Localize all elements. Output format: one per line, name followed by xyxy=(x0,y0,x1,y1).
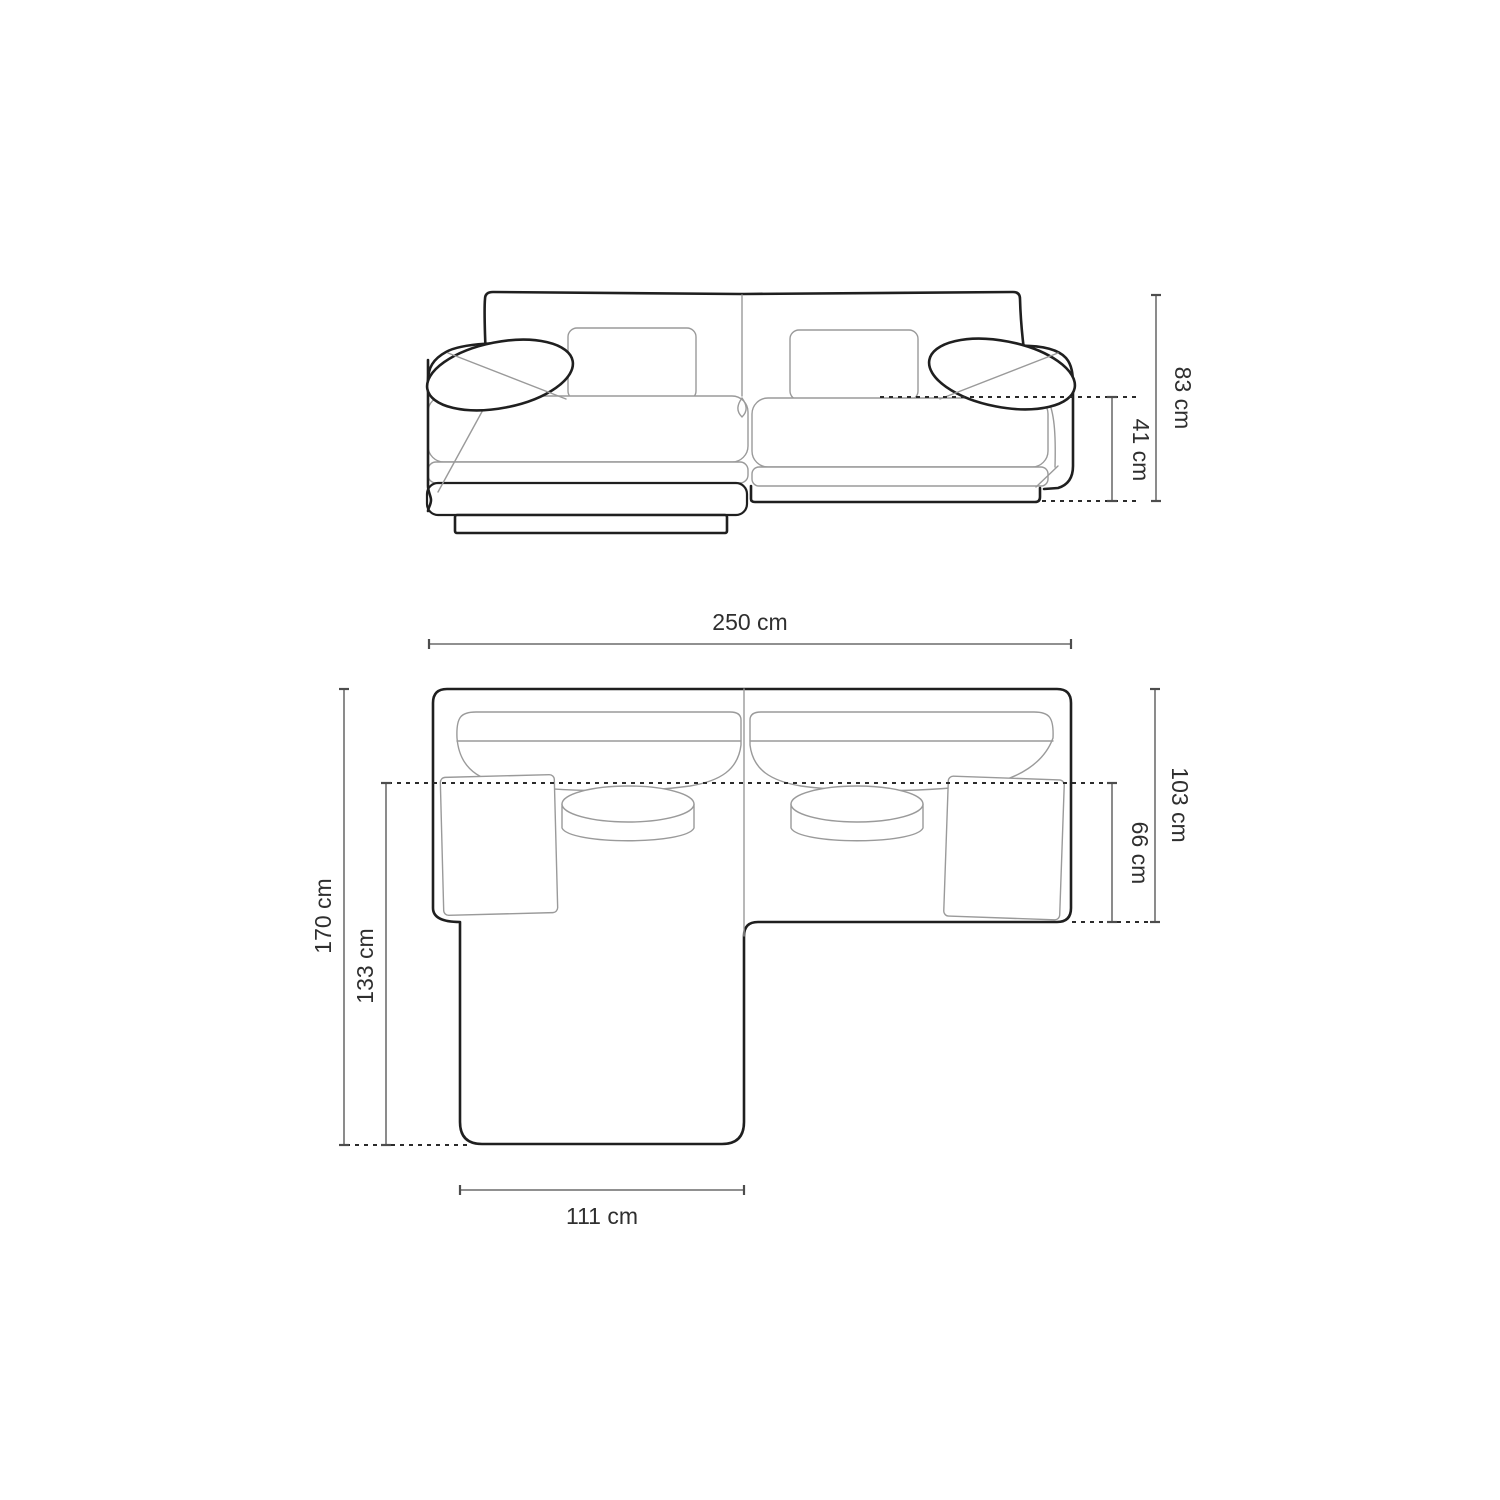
top-pillow-right xyxy=(944,776,1065,920)
label-chaise-width: 111 cm xyxy=(566,1203,638,1229)
sofa-dimension-diagram: 83 cm 41 cm xyxy=(0,0,1500,1500)
dimension-chaise-width: 111 cm xyxy=(460,1185,744,1229)
label-body-depth: 103 cm xyxy=(1167,767,1193,842)
top-pillow-left xyxy=(440,775,558,916)
front-right-seat-band xyxy=(752,467,1048,486)
label-seat-depth: 66 cm xyxy=(1127,822,1153,885)
front-view: 83 cm 41 cm xyxy=(421,292,1196,533)
top-seat-cushion-right-rim xyxy=(791,786,923,822)
label-overall-width: 250 cm xyxy=(712,609,787,635)
dimension-overall-depth: 170 cm xyxy=(310,689,349,1145)
dimension-seat-height: 41 cm xyxy=(1107,397,1154,501)
front-right-arm-inner-line xyxy=(1048,400,1055,467)
top-seat-cushion-right xyxy=(791,786,923,841)
label-overall-height: 83 cm xyxy=(1170,367,1196,430)
top-seat-cushion-left xyxy=(562,786,694,841)
dimension-overall-height: 83 cm xyxy=(1151,295,1196,501)
front-chaise-lower-band xyxy=(427,483,747,515)
front-back-cushion-right xyxy=(790,330,918,400)
dimension-chaise-depth: 133 cm xyxy=(352,783,391,1145)
label-chaise-depth: 133 cm xyxy=(352,928,378,1003)
label-overall-depth: 170 cm xyxy=(310,878,336,953)
sofa-dimension-diagram-page: 83 cm 41 cm xyxy=(0,0,1500,1500)
dimension-overall-width: 250 cm xyxy=(429,609,1071,649)
top-seat-cushion-left-rim xyxy=(562,786,694,822)
front-chaise-seat-band xyxy=(428,462,748,483)
dimension-seat-depth: 66 cm xyxy=(1107,783,1153,922)
top-view: 250 cm 170 cm 133 cm 103 cm xyxy=(310,609,1193,1229)
front-right-plinth xyxy=(751,486,1040,502)
label-seat-height: 41 cm xyxy=(1128,419,1154,482)
front-back-cushion-left xyxy=(568,328,696,400)
front-chaise-plinth xyxy=(455,515,727,533)
dimension-body-depth: 103 cm xyxy=(1150,689,1193,922)
